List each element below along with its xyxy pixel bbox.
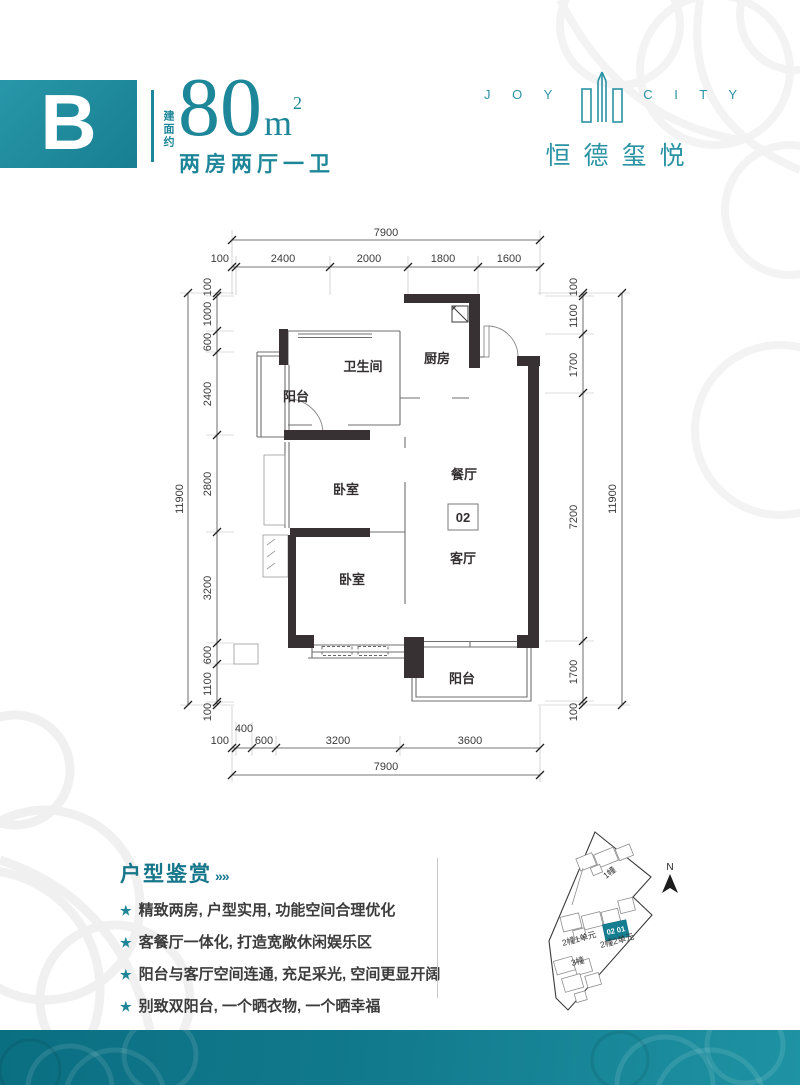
- room-label-balcony-bottom: 阳台: [449, 671, 475, 686]
- area-prefix: 建面约: [162, 110, 176, 162]
- dimension-labels: 7900 100 2400 2000 1800 1600 11900 100 1…: [174, 227, 619, 773]
- logo-city-text: C I T Y: [643, 87, 746, 102]
- thick-walls: [279, 294, 540, 678]
- feature-item-text: 别致双阳台, 一个晒衣物, 一个晒幸福: [139, 998, 381, 1015]
- dim-left-7: 1100: [202, 672, 214, 696]
- area-value: 80: [178, 66, 262, 150]
- site-label-b1: 1幢: [601, 864, 618, 880]
- section-divider: [437, 858, 438, 998]
- star-bullet-icon: ★: [120, 967, 132, 982]
- floorplan-flyer: { "header": { "unit_letter": "B", "area_…: [0, 0, 800, 1085]
- dim-left-8: 100: [202, 703, 214, 721]
- feature-item-text: 精致两房, 户型实用, 功能空间合理优化: [139, 902, 396, 919]
- dim-bottom-4: 3600: [458, 735, 482, 747]
- header-divider: [151, 90, 154, 162]
- dim-bottom-3: 3200: [326, 735, 350, 747]
- room-label-bedroom1: 卧室: [333, 482, 359, 497]
- room-label-bathroom: 卫生间: [343, 359, 382, 374]
- unit-letter-box: B: [0, 80, 137, 168]
- room-label-bedroom2: 卧室: [339, 572, 365, 587]
- dim-left-2: 600: [202, 333, 214, 351]
- features-title-text: 户型鉴赏: [120, 863, 212, 886]
- dim-right-total: 11900: [607, 484, 619, 514]
- room-label-unit-number: 02: [456, 510, 470, 525]
- north-label: N: [666, 862, 673, 873]
- door-arcs: [288, 326, 518, 434]
- dim-right-1: 1100: [568, 304, 580, 328]
- star-bullet-icon: ★: [120, 935, 132, 950]
- dim-right-0: 100: [568, 278, 580, 296]
- room-label-dining: 餐厅: [450, 467, 477, 482]
- dim-top-1: 2400: [271, 253, 295, 265]
- dim-bottom-total: 7900: [374, 761, 398, 773]
- dim-top-2: 2000: [357, 253, 381, 265]
- logo-joy-text: J O Y: [484, 87, 561, 102]
- dim-left-1: 1000: [202, 302, 214, 326]
- features-title: 户型鉴赏»»: [120, 858, 430, 888]
- dim-top-0: 100: [211, 253, 229, 265]
- logo-row: J O Y C I T Y: [484, 68, 746, 128]
- dim-left-4: 2800: [202, 472, 214, 496]
- room-label-balcony-top: 阳台: [283, 389, 309, 404]
- bottom-band: [0, 1030, 800, 1085]
- room-label-living: 客厅: [450, 551, 476, 566]
- dim-right-3: 7200: [568, 505, 580, 529]
- joy-city-building-icon: [577, 68, 627, 128]
- dim-left-5: 3200: [202, 576, 214, 600]
- dim-left-0: 100: [202, 278, 214, 296]
- feature-item-text: 客餐厅一体化, 打造宽敞休闲娱乐区: [139, 934, 372, 951]
- dim-top-total: 7900: [374, 227, 398, 239]
- feature-item-text: 阳台与客厅空间连通, 充足采光, 空间更显开阔: [139, 966, 441, 983]
- dim-right-2: 1700: [568, 353, 580, 377]
- dim-left-3: 2400: [202, 382, 214, 406]
- room-label-kitchen: 厨房: [424, 351, 450, 366]
- features-title-arrows: »»: [215, 868, 229, 884]
- brand-logo: J O Y C I T Y 恒德玺悦: [450, 68, 780, 172]
- thin-walls: [234, 331, 531, 701]
- star-bullet-icon: ★: [120, 903, 132, 918]
- dim-bottom-1: 400: [235, 723, 253, 735]
- area-superscript: 2: [293, 93, 302, 114]
- features-section: 户型鉴赏»» ★精致两房, 户型实用, 功能空间合理优化 ★客餐厅一体化, 打造…: [120, 858, 430, 1016]
- dim-left-6: 600: [202, 646, 214, 664]
- brand-name: 恒德玺悦: [532, 136, 697, 172]
- dim-bottom-2: 600: [255, 735, 273, 747]
- dim-left-total: 11900: [174, 484, 186, 514]
- dim-top-3: 1800: [431, 253, 455, 265]
- dim-right-5: 100: [568, 703, 580, 721]
- floorplan-drawing: 7900 100 2400 2000 1800 1600 11900 100 1…: [150, 222, 680, 792]
- north-arrow-icon: N: [662, 862, 678, 893]
- feature-item: ★阳台与客厅空间连通, 充足采光, 空间更显开阔: [120, 963, 430, 984]
- dim-right-4: 1700: [568, 660, 580, 684]
- site-plan: 02 01 1幢 2幢1单元 2幢2单元 3幢 N: [530, 825, 780, 1025]
- dim-top-4: 1600: [497, 253, 521, 265]
- star-bullet-icon: ★: [120, 999, 132, 1014]
- dim-bottom-0: 100: [211, 735, 229, 747]
- kitchen-flue: [452, 306, 468, 322]
- layout-description: 两房两厅一卫: [179, 148, 335, 178]
- feature-item: ★客餐厅一体化, 打造宽敞休闲娱乐区: [120, 931, 430, 952]
- feature-item: ★精致两房, 户型实用, 功能空间合理优化: [120, 899, 430, 920]
- band-pattern: [0, 1030, 800, 1085]
- feature-item: ★别致双阳台, 一个晒衣物, 一个晒幸福: [120, 995, 430, 1016]
- area-unit: m: [264, 102, 292, 144]
- unit-letter: B: [40, 83, 96, 161]
- area-line: 80 m 2: [178, 66, 301, 150]
